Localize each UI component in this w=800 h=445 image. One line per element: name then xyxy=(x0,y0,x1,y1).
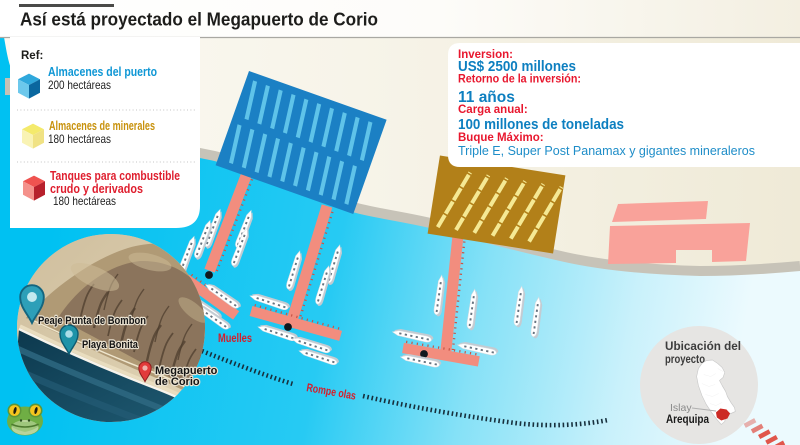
svg-text:Almacenes de minerales: Almacenes de minerales xyxy=(49,119,155,133)
svg-text:Peaje Punta de Bombon: Peaje Punta de Bombon xyxy=(38,315,146,327)
svg-text:Almacenes del puerto: Almacenes del puerto xyxy=(48,65,157,79)
svg-text:proyecto: proyecto xyxy=(665,354,705,366)
svg-text:Retorno de la inversión:: Retorno de la inversión: xyxy=(458,74,581,86)
svg-text:100 millones de toneladas: 100 millones de toneladas xyxy=(458,116,624,133)
svg-text:de Corio: de Corio xyxy=(155,376,200,388)
svg-text:Triple E, Super Post Panamax y: Triple E, Super Post Panamax y gigantes … xyxy=(458,143,755,158)
svg-text:Arequipa: Arequipa xyxy=(666,414,710,426)
svg-text:Así está proyectado el Megapue: Así está proyectado el Megapuerto de Cor… xyxy=(20,9,378,30)
svg-text:180 hectáreas: 180 hectáreas xyxy=(53,194,116,208)
svg-text:US$ 2500 millones: US$ 2500 millones xyxy=(458,58,576,75)
svg-text:Playa Bonita: Playa Bonita xyxy=(82,339,139,351)
svg-text:Ref:: Ref: xyxy=(21,50,43,62)
svg-text:180 hectáreas: 180 hectáreas xyxy=(48,132,111,146)
svg-text:200 hectáreas: 200 hectáreas xyxy=(48,78,111,92)
svg-text:Carga anual:: Carga anual: xyxy=(458,104,528,116)
svg-text:Muelles: Muelles xyxy=(218,333,252,345)
svg-text:Islay: Islay xyxy=(670,402,692,414)
svg-text:Ubicación del: Ubicación del xyxy=(665,341,741,353)
